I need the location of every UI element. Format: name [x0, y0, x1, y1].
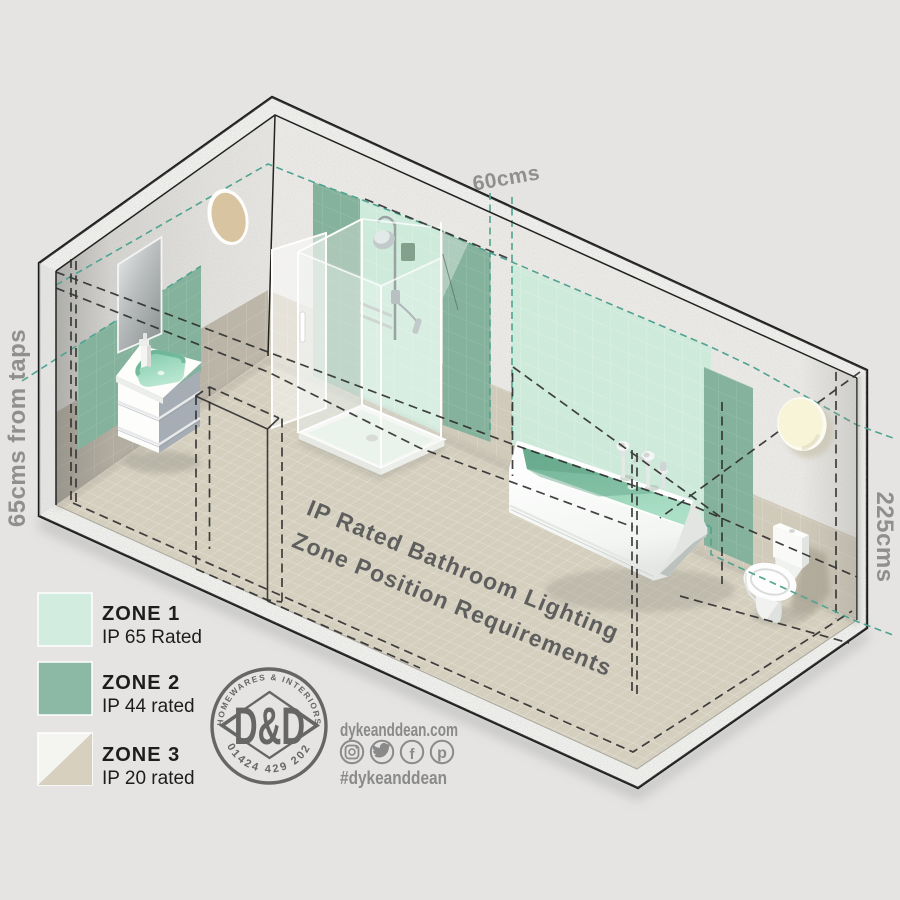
svg-text:225cms: 225cms: [871, 491, 898, 582]
svg-text:IP 20 rated: IP 20 rated: [102, 768, 195, 789]
svg-text:ZONE 2: ZONE 2: [102, 672, 180, 694]
svg-text:ZONE 3: ZONE 3: [102, 744, 180, 766]
svg-text:IP 44 rated: IP 44 rated: [102, 696, 195, 717]
svg-text:#dykeanddean: #dykeanddean: [340, 768, 447, 788]
svg-text:ZONE 1: ZONE 1: [102, 603, 180, 625]
svg-text:p: p: [437, 745, 447, 762]
svg-text:dykeanddean.com: dykeanddean.com: [340, 720, 458, 740]
svg-text:D&D: D&D: [234, 697, 305, 756]
svg-text:IP 65 Rated: IP 65 Rated: [102, 627, 202, 648]
svg-text:65cms from taps: 65cms from taps: [4, 329, 31, 527]
